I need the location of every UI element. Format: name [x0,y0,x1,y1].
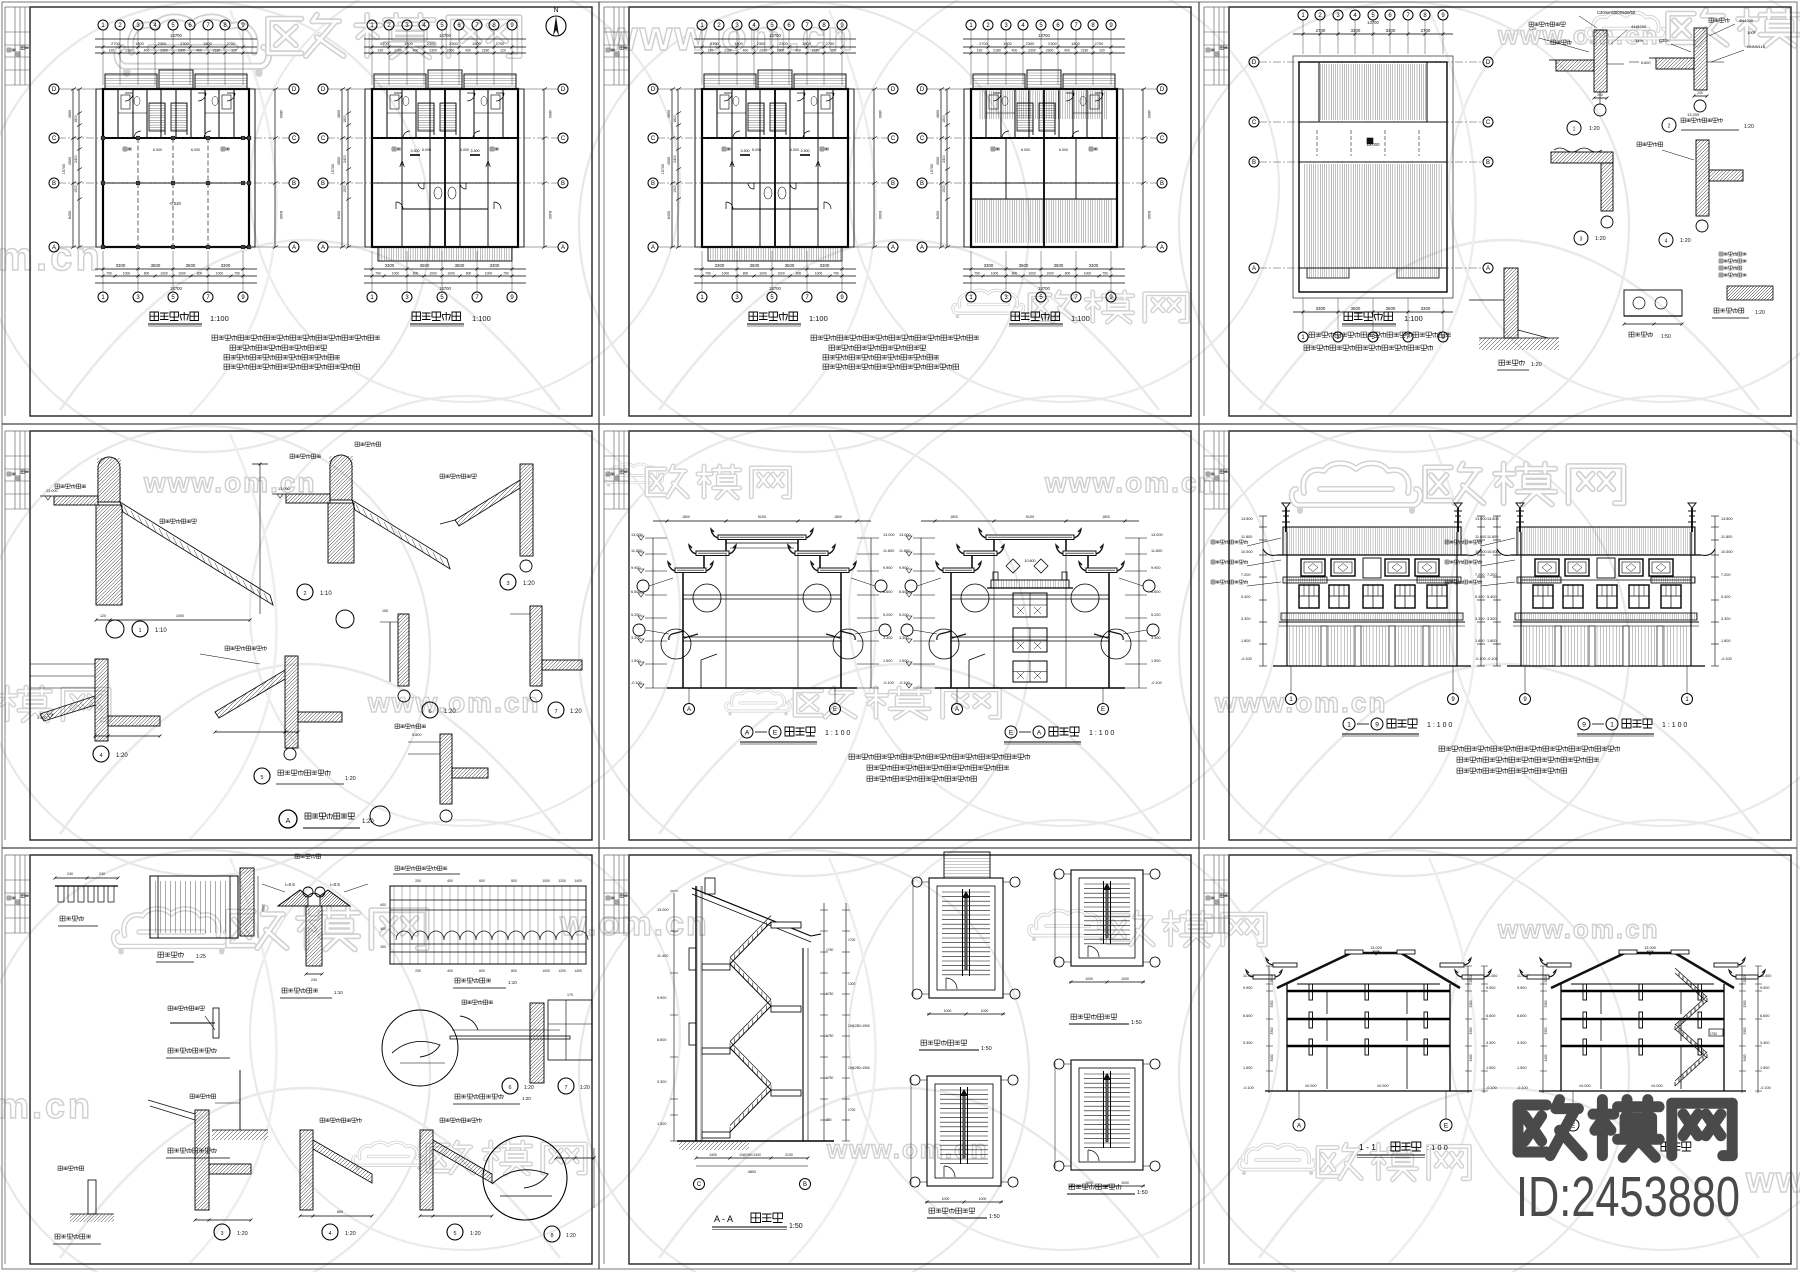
svg-text:-0.100: -0.100 [1243,1086,1254,1090]
svg-text:3.300: 3.300 [1241,617,1251,621]
svg-text:i=0.5: i=0.5 [330,882,340,887]
svg-text:A - A: A - A [714,1214,733,1224]
svg-text:1: 1 [1347,721,1351,728]
svg-text:1000: 1000 [979,1197,987,1201]
svg-text:1:20: 1:20 [1531,362,1542,368]
svg-text:1000: 1000 [1084,272,1092,276]
svg-text:1800: 1800 [1003,41,1012,46]
svg-text:3500: 3500 [1019,263,1029,268]
svg-text:-0.100: -0.100 [1475,657,1486,661]
svg-text:15@280=1960: 15@280=1960 [848,1066,870,1070]
svg-text:11.800: 11.800 [1151,549,1162,553]
svg-text:2: 2 [303,591,306,597]
svg-text:NNNN110: NNNN110 [1747,44,1766,49]
svg-text:4800: 4800 [1147,110,1151,118]
svg-text:3500: 3500 [1054,263,1064,268]
svg-text:600: 600 [380,903,386,907]
svg-text:2180: 2180 [482,49,490,53]
svg-text:15@280=1960: 15@280=1960 [848,1024,870,1028]
svg-text:1000: 1000 [176,614,184,618]
svg-text:13.000: 13.000 [1151,533,1163,537]
svg-text:9.900: 9.900 [1517,986,1527,990]
svg-text:D: D [891,87,896,93]
svg-text:13700: 13700 [1038,286,1050,291]
svg-text:2180: 2180 [125,49,133,53]
svg-text:1000: 1000 [944,1009,952,1013]
svg-text:1 - 1: 1 - 1 [1359,1142,1376,1152]
svg-text:10.500: 10.500 [1241,550,1253,554]
svg-text:1:20: 1:20 [444,709,456,715]
svg-text:-0.100: -0.100 [1517,1086,1528,1090]
svg-text:C: C [1252,120,1257,126]
svg-text:3300: 3300 [1316,306,1326,311]
svg-text:800: 800 [796,272,802,276]
svg-text:1 : 1 0 0: 1 : 1 0 0 [1662,722,1687,729]
svg-text:1000: 1000 [1046,272,1054,276]
svg-text:2700: 2700 [111,41,120,46]
svg-text:120: 120 [1099,49,1105,53]
svg-text:A: A [687,707,691,713]
svg-text:5.400: 5.400 [1475,595,1485,599]
svg-text:1000: 1000 [123,272,131,276]
svg-text:1:20: 1:20 [570,709,582,715]
svg-text:3.300: 3.300 [411,149,420,153]
svg-text:3300: 3300 [1469,1000,1473,1007]
svg-text:3300: 3300 [1351,28,1361,33]
svg-text:1000: 1000 [991,272,999,276]
svg-text:11.800: 11.800 [1475,535,1486,539]
svg-text:A: A [1252,266,1256,272]
svg-text:B: B [321,181,325,187]
svg-text:3400: 3400 [1270,1054,1274,1061]
svg-text:B: B [52,181,56,187]
svg-text:1200: 1200 [558,969,566,973]
svg-text:800: 800 [511,969,517,973]
svg-text:1:20: 1:20 [1744,124,1754,130]
svg-text:200: 200 [415,969,421,973]
svg-text:790: 790 [503,272,509,276]
svg-text:8400: 8400 [667,211,671,219]
svg-text:800: 800 [1012,272,1018,276]
svg-text:A: A [815,160,821,169]
svg-text:6.600: 6.600 [899,590,909,594]
svg-text:10.800: 10.800 [1025,559,1036,563]
svg-text:800: 800 [743,272,749,276]
svg-text:6: 6 [428,709,431,715]
svg-text:120: 120 [708,49,714,53]
svg-text:C: C [920,136,925,142]
svg-text:15700: 15700 [62,164,66,175]
svg-text:3.300: 3.300 [1487,617,1497,621]
svg-text:3300: 3300 [1089,263,1099,268]
svg-text:1200: 1200 [558,879,566,883]
svg-text:3400: 3400 [1743,1054,1747,1061]
svg-text:3.300: 3.300 [37,716,47,720]
svg-text:2300: 2300 [449,41,458,46]
svg-text:1500: 1500 [74,185,78,193]
svg-text:A: A [1037,729,1042,736]
svg-text:1:100: 1:100 [1071,314,1090,323]
svg-text:790: 790 [974,272,980,276]
svg-text:790: 790 [705,272,711,276]
svg-text:-0.020: -0.020 [169,201,182,206]
svg-text:2180: 2180 [213,49,221,53]
svg-text:1: 1 [1573,127,1576,133]
svg-text:2700: 2700 [227,41,236,46]
svg-text:C: C [52,136,57,142]
svg-text:2400: 2400 [343,155,347,163]
svg-text:3300: 3300 [1544,1027,1548,1034]
svg-text:9100: 9100 [758,515,766,519]
svg-text:1:20: 1:20 [1680,238,1691,244]
svg-text:8400: 8400 [878,211,882,219]
svg-text:2300: 2300 [759,49,767,53]
svg-text:A: A [292,245,296,251]
svg-text:2180: 2180 [812,49,820,53]
svg-text:10@260=1300: 10@260=1300 [739,1153,761,1157]
svg-text:-0.100: -0.100 [1151,681,1162,685]
svg-text:200: 200 [380,945,386,949]
svg-text:120: 120 [378,49,384,53]
svg-text:1.800: 1.800 [1241,639,1251,643]
svg-text:400: 400 [413,49,419,53]
svg-text:1:25: 1:25 [196,954,206,960]
svg-text:1800: 1800 [135,41,144,46]
svg-text:A: A [561,245,565,251]
svg-text:34%: 34% [1635,38,1643,43]
svg-text:6.600: 6.600 [1641,61,1651,65]
svg-text:7: 7 [564,1085,567,1091]
svg-text:7: 7 [554,709,557,715]
svg-text:2400: 2400 [673,155,677,163]
svg-text:1: 1 [138,628,141,634]
svg-text:4500: 4500 [68,157,72,165]
svg-text:3.300: 3.300 [899,636,909,640]
svg-text:1000: 1000 [981,1009,989,1013]
svg-text:-0.100: -0.100 [1721,657,1732,661]
svg-text:A: A [955,707,959,713]
svg-text:9.900: 9.900 [1151,566,1161,570]
svg-text:2180: 2180 [724,49,732,53]
svg-text:400: 400 [795,49,801,53]
svg-text:3500: 3500 [750,263,760,268]
svg-text:B: B [292,181,296,187]
svg-text:1:100: 1:100 [472,314,491,323]
svg-text:1.500: 1.500 [1517,1066,1527,1070]
svg-text:4N4200: 4N4200 [1739,18,1754,23]
svg-text:11.400: 11.400 [1243,974,1254,978]
svg-text:790: 790 [1102,272,1108,276]
svg-text:5.200: 5.200 [883,613,893,617]
svg-text:7.200: 7.200 [1721,573,1731,577]
svg-text:13700: 13700 [439,33,451,38]
svg-text:A: A [745,729,750,736]
svg-text:1800: 1800 [834,515,842,519]
svg-text:8400: 8400 [548,211,552,219]
svg-text:A: A [399,160,405,169]
svg-text:11.800: 11.800 [899,549,910,553]
svg-text:13.800: 13.800 [1475,517,1487,521]
svg-text:3.300: 3.300 [657,1080,667,1084]
svg-text:240: 240 [1697,91,1703,95]
svg-text:3500: 3500 [785,263,795,268]
svg-text:C: C [697,1182,702,1188]
svg-text:6.600: 6.600 [883,590,893,594]
svg-text:6.000: 6.000 [191,148,200,152]
svg-text:7.200: 7.200 [1241,573,1251,577]
svg-text:3300: 3300 [1270,1027,1274,1034]
svg-text:8: 8 [550,1233,553,1239]
svg-text:1:20: 1:20 [345,1231,356,1237]
svg-text:-0.100: -0.100 [1760,1086,1771,1090]
svg-text:1000: 1000 [178,272,186,276]
svg-text:www.om.cn: www.om.cn [143,467,317,498]
svg-text:4800: 4800 [878,110,882,118]
svg-text:1700: 1700 [848,1108,856,1112]
svg-text:100F: 100F [1747,30,1757,35]
svg-text:3300: 3300 [1469,1027,1473,1034]
svg-text:13.000: 13.000 [883,533,895,537]
svg-text:5.400: 5.400 [1487,595,1497,599]
svg-text:2300: 2300 [1048,41,1057,46]
svg-text:1000: 1000 [777,272,785,276]
svg-text:2700: 2700 [1421,28,1431,33]
svg-text:240: 240 [99,872,105,876]
svg-text:170: 170 [567,993,573,997]
svg-text:1000: 1000 [1121,977,1129,981]
svg-text:1000: 1000 [815,272,823,276]
svg-text:3300: 3300 [221,263,231,268]
svg-text:-0.100: -0.100 [899,681,910,685]
svg-text:4800: 4800 [748,1170,756,1174]
svg-text:2300: 2300 [158,41,167,46]
svg-text:1750: 1750 [1710,1032,1717,1036]
svg-text:1000: 1000 [722,272,730,276]
svg-text:1:20: 1:20 [1589,126,1600,132]
svg-text:6.600: 6.600 [657,1038,667,1042]
svg-text:1800: 1800 [343,115,347,123]
svg-text:15700: 15700 [661,164,665,175]
svg-text:E: E [833,707,837,713]
svg-text:1.500: 1.500 [899,659,909,663]
svg-text:D: D [321,87,326,93]
svg-text:400: 400 [380,927,386,931]
svg-text:400: 400 [465,49,471,53]
svg-text:5.800: 5.800 [412,733,422,737]
svg-text:120: 120 [109,49,115,53]
svg-text:400: 400 [1064,49,1070,53]
svg-text:1400: 1400 [709,1153,717,1157]
svg-text:13700: 13700 [1367,20,1379,25]
svg-text:9.900: 9.900 [1243,986,1253,990]
svg-text:800: 800 [1065,272,1071,276]
svg-text:800: 800 [466,272,472,276]
svg-text:6.000: 6.000 [1021,148,1030,152]
svg-text:2300: 2300 [427,41,436,46]
svg-text:1.500: 1.500 [1760,1066,1770,1070]
svg-text:1:50: 1:50 [1661,334,1671,340]
svg-text:1:20: 1:20 [524,1085,534,1091]
svg-text:800: 800 [197,272,203,276]
svg-text:A: A [1297,1122,1302,1129]
svg-text:1800: 1800 [74,115,78,123]
svg-text:1.500: 1.500 [883,659,893,663]
svg-text:ID:2453880: ID:2453880 [1516,1164,1740,1228]
svg-text:1:50: 1:50 [981,1046,992,1052]
svg-text:4800: 4800 [337,110,341,118]
svg-text:2700: 2700 [979,41,988,46]
svg-text:400: 400 [144,49,150,53]
svg-text:C: C [891,136,896,142]
svg-text:2700: 2700 [1095,41,1104,46]
svg-text:3400: 3400 [1544,1054,1548,1061]
svg-text:1.500: 1.500 [657,1122,667,1126]
svg-text:2180: 2180 [394,49,402,53]
svg-text:9.900: 9.900 [657,996,667,1000]
svg-text:3.300: 3.300 [883,636,893,640]
svg-text:800: 800 [337,1210,343,1214]
svg-text:1:100: 1:100 [809,314,828,323]
svg-text:C: C [1160,136,1165,142]
svg-text:1:100: 1:100 [1404,314,1423,323]
svg-text:6: 6 [508,1085,511,1091]
svg-text:1800: 1800 [673,115,677,123]
svg-text:C: C [292,136,297,142]
svg-text:1800: 1800 [1102,515,1110,519]
svg-text:1:20: 1:20 [1595,236,1606,242]
svg-text:1000: 1000 [542,879,550,883]
svg-text:10.500: 10.500 [1721,550,1733,554]
svg-text:5.400: 5.400 [1241,595,1251,599]
svg-text:C: C [561,136,566,142]
svg-text:11.400: 11.400 [657,954,668,958]
svg-text:13.800: 13.800 [1721,517,1733,521]
svg-text:B: B [1160,181,1164,187]
svg-text:1 : 1 0 0: 1 : 1 0 0 [825,730,850,737]
svg-text:D: D [292,87,297,93]
svg-text:2300: 2300 [1046,49,1054,53]
svg-text:1.500: 1.500 [1151,659,1161,663]
svg-text:±0.000: ±0.000 [1305,1084,1317,1088]
svg-text:1000: 1000 [1121,1181,1129,1185]
svg-text:9: 9 [1375,721,1379,728]
svg-text:8400: 8400 [1147,211,1151,219]
svg-text:A: A [729,160,735,169]
svg-text:9100: 9100 [1026,515,1034,519]
svg-text:www.om.cn: www.om.cn [1497,914,1660,944]
svg-text:11.400: 11.400 [1486,974,1497,978]
svg-text:13.000: 13.000 [899,533,911,537]
svg-text:N: N [553,7,558,14]
svg-text:4800: 4800 [68,110,72,118]
svg-text:A: A [1486,266,1490,272]
svg-text:400: 400 [743,49,749,53]
svg-text:400: 400 [447,879,453,883]
svg-text:D: D [651,87,656,93]
svg-text:3: 3 [506,581,509,587]
svg-text:2400: 2400 [942,155,946,163]
svg-text:C: C [321,136,326,142]
svg-text:1000: 1000 [429,272,437,276]
svg-text:om.cn: om.cn [0,235,103,279]
svg-text:2700: 2700 [496,41,505,46]
svg-text:13.000: 13.000 [631,533,643,537]
svg-text:13.000: 13.000 [278,487,290,491]
svg-text:3300: 3300 [1421,306,1431,311]
svg-text:D: D [920,87,925,93]
svg-text:5: 5 [453,1231,456,1237]
svg-text:1400: 1400 [574,969,582,973]
svg-text:2300: 2300 [180,41,189,46]
svg-text:1.500: 1.500 [1486,1066,1496,1070]
svg-text:3400: 3400 [1469,1054,1473,1061]
svg-text:4500: 4500 [337,157,341,165]
svg-text:790: 790 [234,272,240,276]
svg-text:1:20: 1:20 [522,1096,531,1101]
svg-text:1:20: 1:20 [470,1231,481,1237]
svg-text:E: E [1101,707,1105,713]
svg-text:5.400: 5.400 [1721,595,1731,599]
svg-text:1800: 1800 [942,115,946,123]
svg-text:±0.000: ±0.000 [1579,1084,1591,1088]
svg-text:2800: 2800 [1743,975,1747,982]
svg-text:-0.100: -0.100 [1486,1086,1497,1090]
svg-text:6.000: 6.000 [460,148,469,152]
svg-text:600: 600 [479,969,485,973]
svg-text:3: 3 [220,1231,223,1237]
svg-text:4: 4 [99,753,102,759]
svg-text:1000: 1000 [1085,977,1093,981]
svg-text:120: 120 [231,49,237,53]
svg-text:13700: 13700 [170,33,182,38]
svg-text:1500: 1500 [343,185,347,193]
svg-text:600: 600 [479,879,485,883]
svg-text:4: 4 [328,1231,331,1237]
svg-text:240: 240 [67,872,73,876]
svg-text:1000: 1000 [485,272,493,276]
svg-text:B: B [651,181,655,187]
svg-text:1000: 1000 [942,1197,950,1201]
svg-text:5: 5 [260,775,263,781]
svg-text:E: E [1009,729,1014,736]
svg-text:A: A [286,818,291,825]
svg-text:1800: 1800 [203,41,212,46]
svg-text:3300: 3300 [715,263,725,268]
svg-text:6.600: 6.600 [1517,1014,1527,1018]
svg-text:13700: 13700 [439,286,451,291]
svg-text:3.300: 3.300 [1243,1041,1253,1045]
svg-text:200: 200 [415,879,421,883]
svg-text:2300: 2300 [429,49,437,53]
svg-text:1:10: 1:10 [334,990,343,995]
svg-text:3: 3 [1580,237,1583,243]
svg-text:6.600: 6.600 [1243,1014,1253,1018]
svg-text:3.300: 3.300 [801,149,810,153]
svg-text:350: 350 [826,1118,832,1122]
svg-text:B: B [803,1182,807,1188]
svg-text:1300: 1300 [848,982,856,986]
svg-text:1000: 1000 [759,272,767,276]
svg-text:800: 800 [413,272,419,276]
svg-text:3300: 3300 [984,263,994,268]
svg-text:C20mml300X500/50: C20mml300X500/50 [1597,10,1636,15]
svg-text:11.800: 11.800 [1241,535,1252,539]
svg-text:±0.000: ±0.000 [1651,1084,1663,1088]
svg-text:11.400: 11.400 [1760,974,1771,978]
svg-text:1800: 1800 [950,515,958,519]
svg-text:13700: 13700 [1038,33,1050,38]
svg-text:6.000: 6.000 [790,148,799,152]
